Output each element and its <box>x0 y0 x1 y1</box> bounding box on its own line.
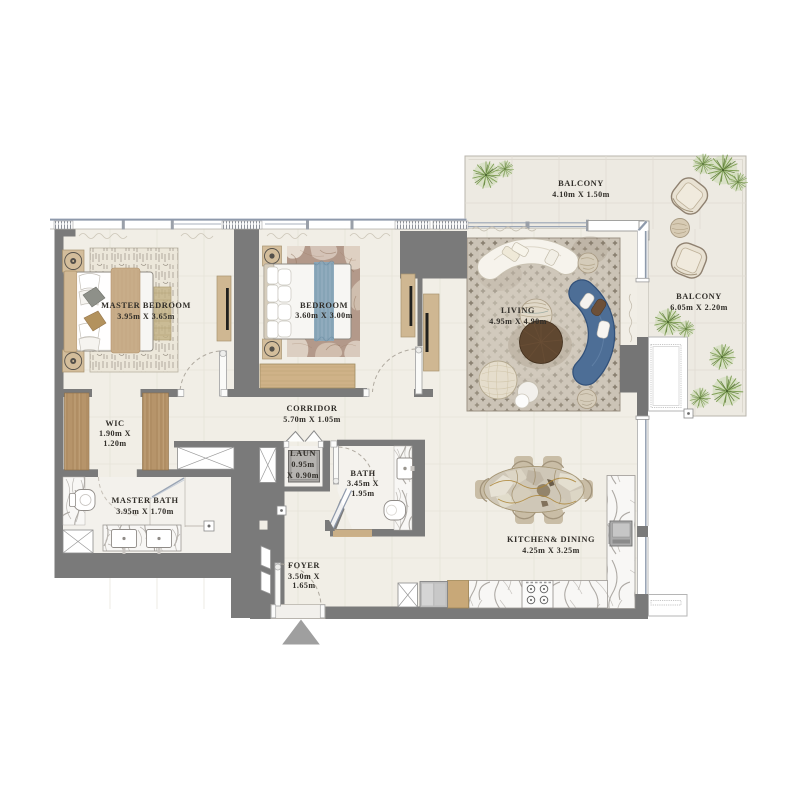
svg-text:MASTER BEDROOM: MASTER BEDROOM <box>101 301 191 310</box>
svg-text:LAUN: LAUN <box>290 449 316 458</box>
svg-text:LIVING: LIVING <box>501 306 535 315</box>
svg-text:4.25m X 3.25m: 4.25m X 3.25m <box>522 546 580 555</box>
svg-text:5.70m X 1.05m: 5.70m X 1.05m <box>283 415 341 424</box>
svg-text:4.10m X 1.50m: 4.10m X 1.50m <box>552 190 610 199</box>
svg-text:3.60m X 3.00m: 3.60m X 3.00m <box>295 311 353 320</box>
svg-text:0.95m: 0.95m <box>291 460 314 469</box>
svg-text:4.95m X 4.90m: 4.95m X 4.90m <box>489 317 547 326</box>
svg-text:BALCONY: BALCONY <box>558 179 604 188</box>
svg-text:MASTER BATH: MASTER BATH <box>111 496 178 505</box>
svg-text:CORRIDOR: CORRIDOR <box>287 404 338 413</box>
svg-text:1.20m: 1.20m <box>103 439 126 448</box>
svg-text:1.65m: 1.65m <box>292 581 315 590</box>
svg-text:3.95m X 3.65m: 3.95m X 3.65m <box>117 312 175 321</box>
svg-text:X 0.90m: X 0.90m <box>287 471 319 480</box>
svg-text:3.45m X: 3.45m X <box>347 479 379 488</box>
svg-text:1.95m: 1.95m <box>351 489 374 498</box>
svg-text:3.95m X 1.70m: 3.95m X 1.70m <box>116 507 174 516</box>
svg-text:BALCONY: BALCONY <box>676 292 722 301</box>
svg-text:BATH: BATH <box>350 469 375 478</box>
svg-text:FOYER: FOYER <box>288 561 320 570</box>
svg-text:KITCHEN& DINING: KITCHEN& DINING <box>507 535 595 544</box>
svg-text:1.90m X: 1.90m X <box>99 429 131 438</box>
svg-text:BEDROOM: BEDROOM <box>300 301 348 310</box>
svg-text:3.50m X: 3.50m X <box>288 572 320 581</box>
svg-text:6.05m X 2.20m: 6.05m X 2.20m <box>670 303 728 312</box>
svg-text:WIC: WIC <box>105 419 124 428</box>
